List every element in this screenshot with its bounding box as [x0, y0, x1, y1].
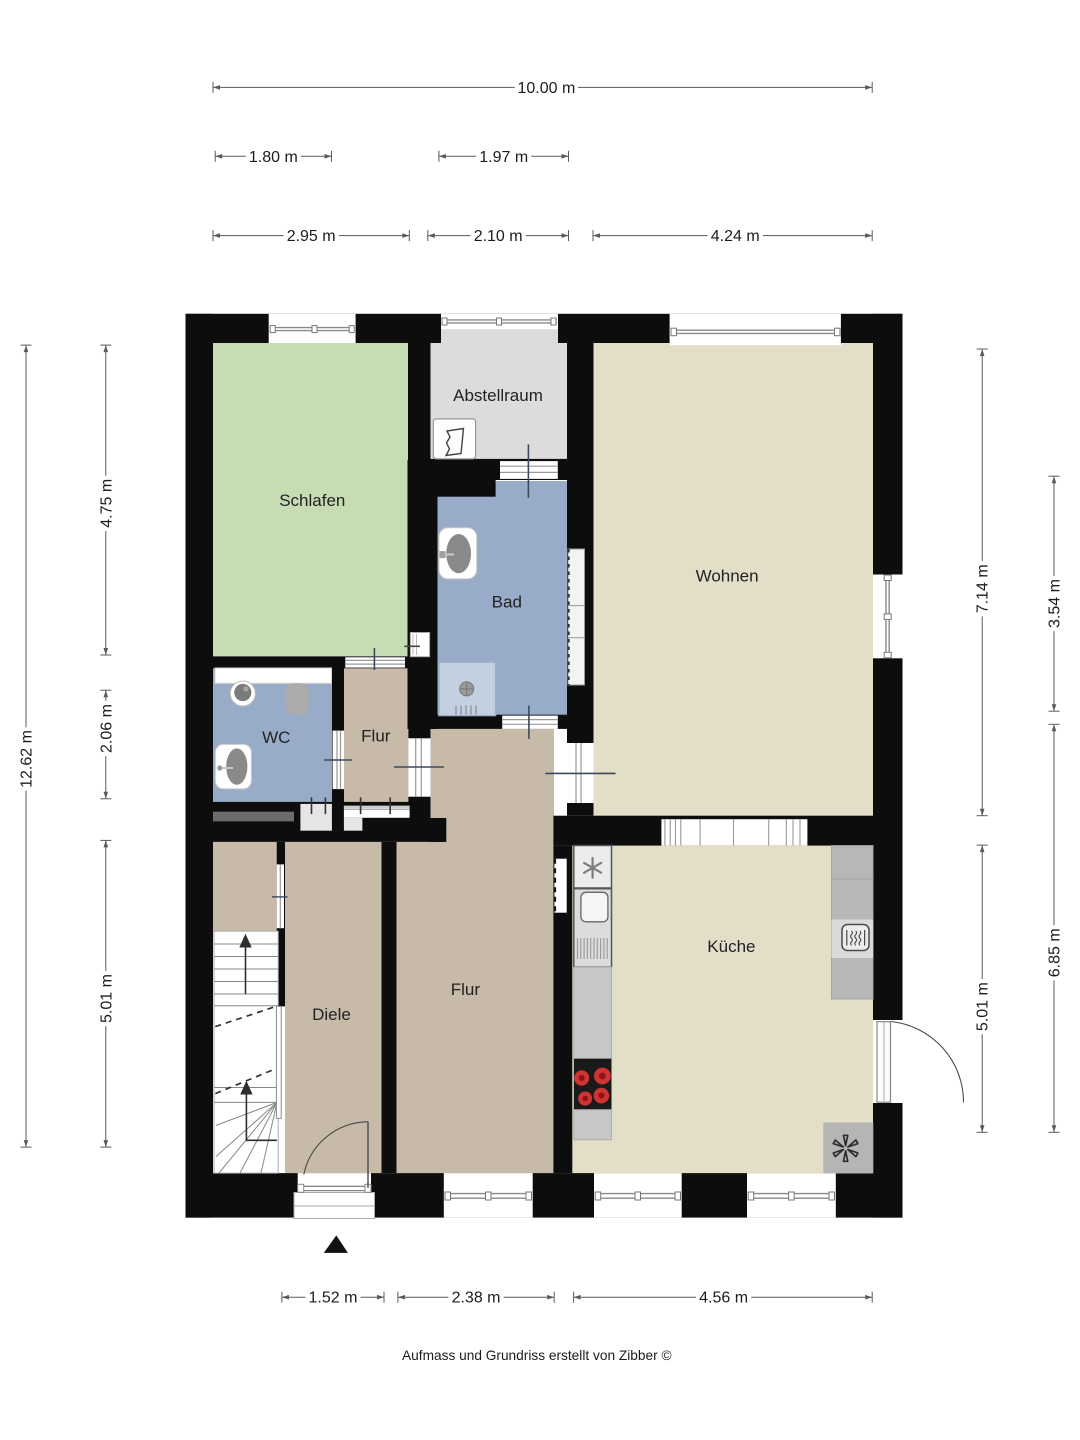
svg-text:2.38 m: 2.38 m	[452, 1290, 501, 1307]
svg-text:Bad: Bad	[492, 593, 522, 612]
svg-text:2.10 m: 2.10 m	[474, 228, 523, 245]
svg-text:Küche: Küche	[707, 937, 755, 956]
svg-text:1.97 m: 1.97 m	[479, 149, 528, 166]
svg-text:WC: WC	[262, 728, 290, 747]
svg-text:Diele: Diele	[312, 1005, 351, 1024]
svg-text:Abstellraum: Abstellraum	[453, 386, 543, 405]
svg-text:Flur: Flur	[451, 980, 481, 999]
svg-text:5.01 m: 5.01 m	[975, 982, 992, 1031]
svg-text:10.00 m: 10.00 m	[517, 80, 575, 97]
svg-text:3.54 m: 3.54 m	[1047, 579, 1064, 628]
svg-text:Schlafen: Schlafen	[279, 491, 345, 510]
svg-text:4.75 m: 4.75 m	[98, 479, 115, 528]
svg-text:Wohnen: Wohnen	[696, 567, 759, 586]
svg-text:7.14 m: 7.14 m	[975, 564, 992, 613]
svg-text:Flur: Flur	[361, 727, 391, 746]
svg-text:1.52 m: 1.52 m	[308, 1290, 357, 1307]
svg-text:Aufmass und Grundriss erstellt: Aufmass und Grundriss erstellt von Zibbe…	[402, 1348, 672, 1363]
svg-text:1.80 m: 1.80 m	[249, 149, 298, 166]
svg-text:6.85 m: 6.85 m	[1047, 928, 1064, 977]
svg-text:4.56 m: 4.56 m	[699, 1290, 748, 1307]
svg-text:2.95 m: 2.95 m	[287, 228, 336, 245]
svg-text:2.06 m: 2.06 m	[98, 704, 115, 753]
svg-text:4.24 m: 4.24 m	[711, 228, 760, 245]
svg-text:5.01 m: 5.01 m	[98, 974, 115, 1023]
svg-text:12.62 m: 12.62 m	[19, 730, 36, 788]
